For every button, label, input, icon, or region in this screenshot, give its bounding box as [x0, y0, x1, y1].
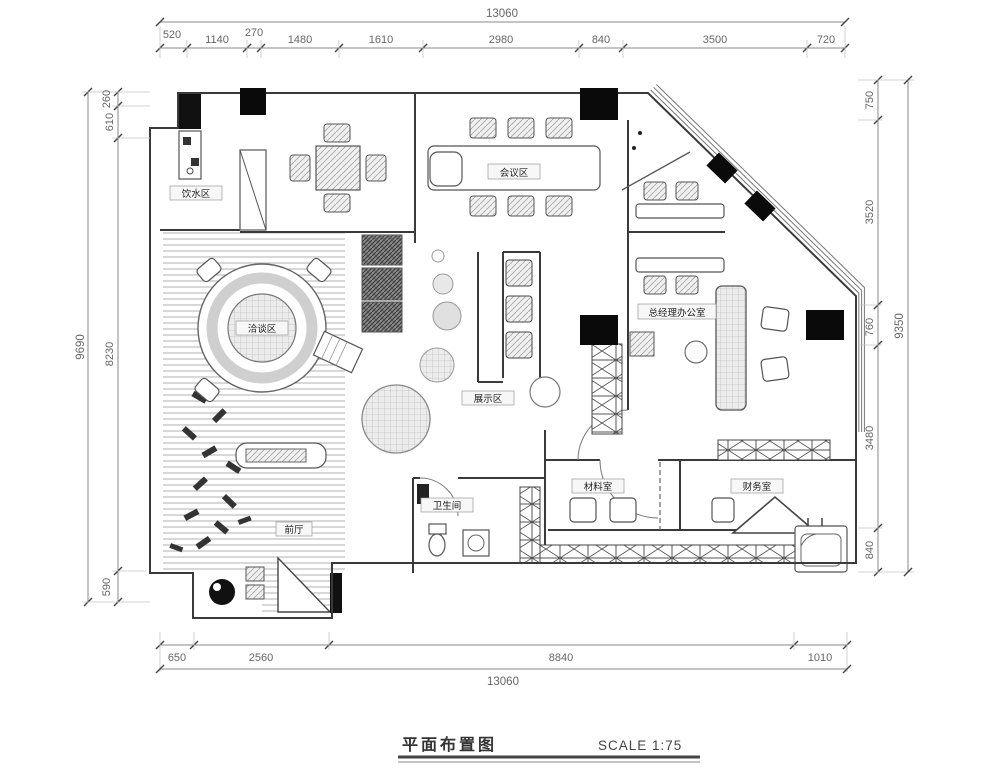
- dim-top-seg-7: 3500: [703, 34, 727, 46]
- dim-right-seg-4: 840: [864, 541, 876, 559]
- dim-top-seg-4: 1610: [369, 34, 393, 46]
- dim-right-total: 9350: [894, 313, 906, 339]
- dim-top-seg-1: 1140: [205, 34, 229, 46]
- floor-plan-drawing: 饮水区 会议区 洽谈区 展示区 总经理办公室 材料室 财务室 卫生间 前厅 13…: [0, 0, 1000, 771]
- drawing-scale: SCALE 1:75: [598, 738, 682, 753]
- title-block: 平面布置图 SCALE 1:75: [398, 735, 700, 762]
- display-bench: [236, 443, 326, 468]
- dim-top-seg-3: 1480: [288, 34, 312, 46]
- room-label-meeting: 会议区: [500, 167, 529, 179]
- room-label-display: 展示区: [474, 394, 503, 405]
- room-label-materials: 材料室: [584, 481, 613, 493]
- dim-top-seg-0: 520: [163, 29, 181, 41]
- room-label-front-hall: 前厅: [284, 524, 304, 536]
- dimension-chain-bottom: 650 2560 8840 1010 13060: [156, 632, 851, 688]
- drawing-title: 平面布置图: [402, 735, 497, 754]
- dim-left-seg-0: 260: [101, 90, 113, 108]
- dim-top-seg-2: 270: [245, 27, 263, 39]
- dim-bottom-seg-1: 2560: [249, 652, 273, 664]
- water-bar-fixture: [177, 93, 201, 179]
- room-label-water: 饮水区: [182, 188, 211, 200]
- dim-left-seg-2: 8230: [104, 342, 116, 366]
- bottom-cabinet-row: [540, 545, 830, 563]
- room-label-bathroom: 卫生间: [433, 500, 462, 512]
- dim-right-seg-2: 760: [864, 318, 876, 336]
- dim-top-seg-8: 720: [817, 34, 835, 46]
- display-cabinets: [506, 260, 532, 358]
- dim-right-seg-1: 3520: [864, 200, 876, 224]
- dim-bottom-total: 13060: [487, 676, 519, 688]
- closet: [240, 150, 266, 230]
- dimension-chain-right: 750 3520 760 3480 840 9350: [858, 76, 914, 576]
- dimension-chain-top: 13060 520 1140 270 1480 1610 2980 840 35…: [156, 8, 849, 58]
- dim-left-total: 9690: [75, 334, 87, 360]
- dimension-chain-left: 9690 260 610 8230 590: [75, 88, 150, 606]
- room-label-lounge: 洽谈区: [248, 323, 277, 335]
- planter-stack: [362, 235, 402, 332]
- dim-left-extensions: [82, 92, 150, 602]
- dim-bottom-seg-3: 1010: [808, 652, 832, 664]
- ladder-shelf: [592, 344, 622, 434]
- dim-top-total: 13060: [486, 8, 518, 20]
- dim-left-seg-3: 590: [101, 578, 113, 596]
- dim-left-seg-1: 610: [104, 113, 116, 131]
- room-label-manager-office: 总经理办公室: [648, 307, 705, 319]
- room-label-finance: 财务室: [743, 481, 772, 493]
- dim-bottom-seg-2: 8840: [549, 652, 573, 664]
- dim-right-seg-3: 3480: [864, 426, 876, 450]
- dim-bottom-seg-0: 650: [168, 652, 186, 664]
- dim-top-seg-6: 840: [592, 34, 610, 46]
- dim-top-seg-5: 2980: [489, 34, 513, 46]
- floor-plan-page: 饮水区 会议区 洽谈区 展示区 总经理办公室 材料室 财务室 卫生间 前厅 13…: [0, 0, 1000, 771]
- dim-right-seg-0: 750: [864, 91, 876, 109]
